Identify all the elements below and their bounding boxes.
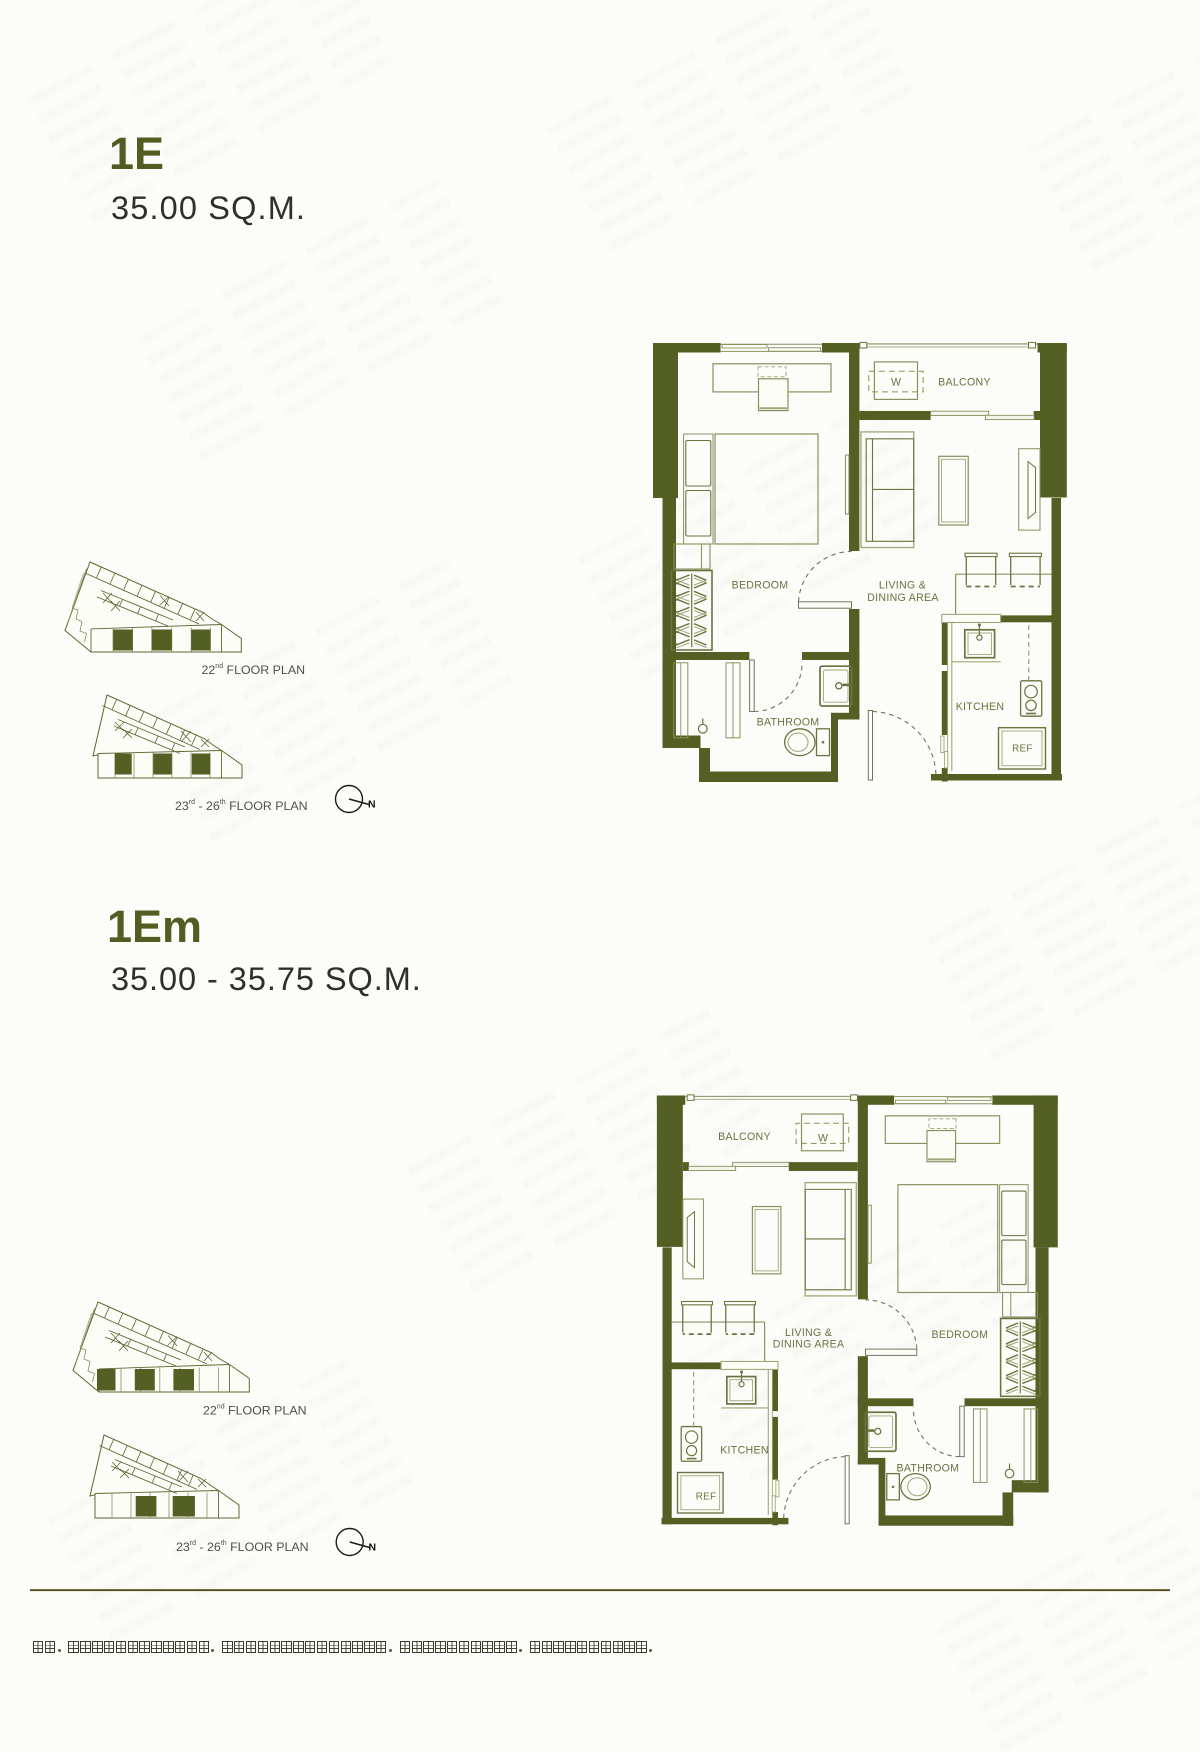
svg-text:1E: 1E xyxy=(109,128,164,179)
svg-text:BEDROOM: BEDROOM xyxy=(732,579,789,591)
svg-text:22nd FLOOR PLAN: 22nd FLOOR PLAN xyxy=(202,663,306,677)
svg-text:35.00 SQ.M.: 35.00 SQ.M. xyxy=(111,190,306,226)
svg-text:W: W xyxy=(818,1133,828,1145)
svg-text:KITCHEN: KITCHEN xyxy=(956,701,1005,713)
svg-text:BALCONY: BALCONY xyxy=(718,1131,771,1143)
svg-text:N: N xyxy=(369,1542,377,1554)
svg-text:BATHROOM: BATHROOM xyxy=(757,717,820,729)
svg-text:BEDROOM: BEDROOM xyxy=(931,1329,988,1341)
svg-text:W: W xyxy=(891,377,901,389)
svg-text:N: N xyxy=(368,799,376,811)
svg-text:1Em: 1Em xyxy=(107,901,202,952)
svg-text:REF: REF xyxy=(696,1492,717,1503)
svg-text:LIVING &: LIVING & xyxy=(785,1327,832,1339)
svg-text:KITCHEN: KITCHEN xyxy=(720,1444,769,1456)
svg-text:DINING AREA: DINING AREA xyxy=(773,1339,845,1351)
svg-text:35.00 - 35.75 SQ.M.: 35.00 - 35.75 SQ.M. xyxy=(111,961,422,997)
svg-text:BATHROOM: BATHROOM xyxy=(896,1463,959,1475)
svg-text:BALCONY: BALCONY xyxy=(938,377,991,389)
svg-text:REF: REF xyxy=(1012,743,1033,754)
svg-text:22nd FLOOR PLAN: 22nd FLOOR PLAN xyxy=(203,1404,307,1418)
svg-text:LIVING &: LIVING & xyxy=(879,579,926,591)
svg-text:23rd - 26th FLOOR PLAN: 23rd - 26th FLOOR PLAN xyxy=(175,799,308,813)
svg-text:DINING AREA: DINING AREA xyxy=(867,592,939,604)
svg-text:23rd - 26th FLOOR PLAN: 23rd - 26th FLOOR PLAN xyxy=(176,1540,309,1554)
